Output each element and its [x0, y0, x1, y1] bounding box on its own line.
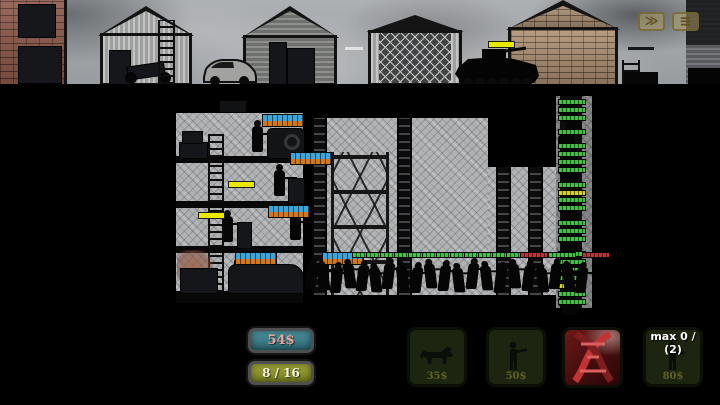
zombie-icon [409, 267, 423, 293]
health-bar-friendly [290, 152, 332, 165]
zombie-icon [521, 265, 535, 291]
dna-icon [565, 330, 620, 385]
health-bar-friendly [262, 114, 304, 127]
health-bar-friendly [268, 205, 310, 218]
ammo-value: 8 / 16 [262, 366, 300, 380]
zombie-icon [451, 268, 465, 293]
structure-bar [628, 47, 654, 50]
zombie-icon [381, 263, 395, 289]
price-label: 35$ [410, 371, 464, 382]
zombie-icon [423, 264, 437, 289]
zombie-icon [507, 264, 521, 289]
zombie-icon [493, 267, 507, 293]
zombie-icon [562, 304, 578, 315]
ammo-bar-zombie [558, 190, 586, 196]
dog-icon [418, 346, 456, 368]
zombie-icon [329, 267, 343, 293]
zombie-icon [479, 266, 493, 291]
money-value: 54$ [267, 333, 294, 348]
soldier-icon [503, 341, 529, 373]
zombie-icon [368, 268, 382, 293]
tank-health-bar [488, 41, 515, 48]
zombie-icon [395, 266, 409, 291]
price-label: 50$ [489, 371, 543, 382]
zombie-icon [465, 263, 479, 289]
money-panel: 54$ [248, 328, 314, 353]
health-bar-friendly [235, 252, 277, 265]
zombie-icon [535, 268, 549, 293]
health-bar-zombie [548, 252, 576, 258]
max-units-counter: max 0 / (2) [640, 330, 706, 356]
price-label: 80$ [646, 371, 700, 382]
zombie-icon [355, 265, 369, 291]
shop-button-soldier[interactable]: 50$ [486, 327, 546, 387]
health-bar-zombie-low [520, 252, 548, 258]
stage: ≫ ≡ 54$ 8 / 16 [0, 0, 720, 405]
shop-button-dog[interactable]: 35$ [407, 327, 467, 387]
health-bar-zombie-low [582, 252, 610, 258]
ammo-panel: 8 / 16 [248, 361, 314, 385]
ammo-bar [228, 181, 255, 188]
zombie-icon [342, 264, 356, 289]
shop-button-dna-upgrade[interactable] [562, 327, 623, 388]
zombie-icon [316, 266, 330, 291]
zombie-icon [574, 267, 588, 293]
structure-bar [345, 47, 363, 50]
ammo-bar [198, 212, 225, 219]
zombie-icon [437, 265, 451, 291]
